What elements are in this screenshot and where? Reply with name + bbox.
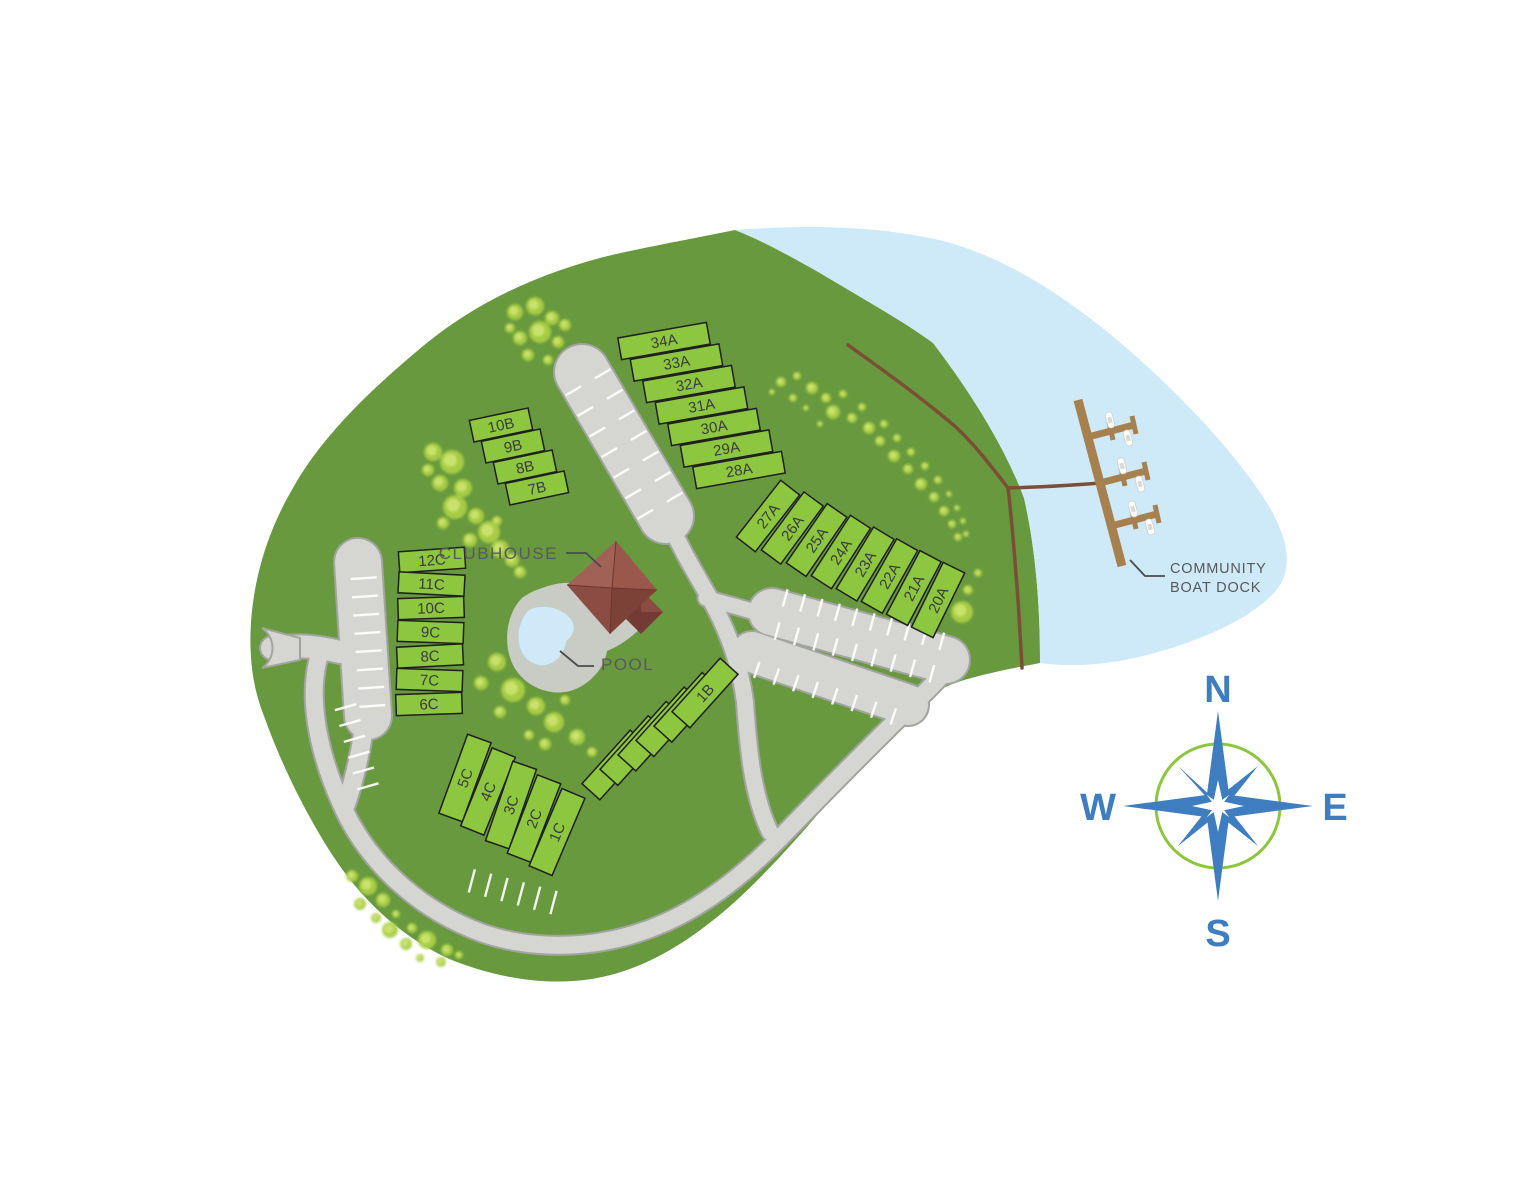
clubhouse-label: CLUBHOUSE [439, 544, 558, 563]
tree-highlight [541, 740, 548, 747]
compass-north: N [1204, 669, 1231, 711]
lot-number: 6C [419, 696, 439, 714]
tree-highlight [444, 454, 457, 467]
tree-highlight [794, 373, 798, 377]
tree-highlight [532, 324, 544, 336]
tree-highlight [954, 604, 966, 616]
compass-east: E [1322, 787, 1347, 829]
tree-highlight [465, 535, 473, 543]
boat-dock-label-line2: BOAT DOCK [1170, 580, 1261, 596]
tree-highlight [509, 306, 518, 315]
tree-highlight [496, 708, 503, 715]
tree-highlight [849, 415, 855, 421]
tree-highlight [434, 477, 443, 486]
tree-highlight [859, 404, 863, 408]
tree-highlight [770, 390, 773, 393]
tree-highlight [908, 449, 912, 453]
tree-highlight [881, 421, 885, 425]
tree-highlight [931, 494, 937, 500]
tree-highlight [964, 532, 967, 535]
tree-highlight [362, 880, 372, 890]
tree-highlight [470, 510, 479, 519]
lot-number: 11C [418, 576, 445, 594]
tree-highlight [894, 435, 898, 439]
tree-highlight [778, 379, 784, 385]
compass-south: S [1205, 913, 1230, 955]
lot-9C[interactable]: 9C [397, 620, 464, 643]
pool-label: POOL [601, 655, 654, 674]
tree-highlight [808, 384, 815, 391]
tree-highlight [554, 338, 561, 345]
lot-number: 9C [421, 624, 441, 642]
tree-highlight [373, 915, 379, 921]
lot-number: 8C [420, 648, 440, 666]
tree-highlight [890, 452, 897, 459]
tree-highlight [941, 508, 947, 514]
tree-highlight [562, 697, 568, 703]
tree-highlight [457, 482, 467, 492]
tree-highlight [877, 438, 883, 444]
lot-number: 7C [420, 672, 440, 690]
lot-6C[interactable]: 6C [396, 692, 463, 715]
tree-highlight [439, 519, 446, 526]
tree-highlight [823, 395, 829, 401]
tree-highlight [356, 900, 363, 907]
tree-highlight [456, 952, 460, 956]
tree-highlight [905, 466, 911, 472]
site-plan-page: 10B9B8B7B34A33A32A31A30A29A28A27A26A25A2… [0, 0, 1536, 1187]
tree-highlight [547, 313, 555, 321]
tree-highlight [545, 357, 551, 363]
tree-highlight [516, 568, 523, 575]
tree-highlight [438, 959, 444, 965]
tree-highlight [443, 946, 450, 953]
tree-highlight [947, 492, 950, 495]
tree-highlight [965, 587, 971, 593]
tree-highlight [507, 325, 513, 331]
lot-11C[interactable]: 11C [398, 572, 465, 596]
tree-highlight [530, 700, 540, 710]
tree-highlight [818, 422, 821, 425]
tree-highlight [515, 333, 523, 341]
tree-highlight [481, 524, 493, 536]
tree-highlight [840, 391, 844, 395]
tree-highlight [402, 940, 409, 947]
tree-highlight [790, 395, 794, 399]
tree-highlight [865, 424, 872, 431]
tree-highlight [393, 911, 397, 915]
tree-highlight [917, 480, 924, 487]
tree-highlight [949, 521, 953, 525]
tree-highlight [804, 406, 807, 409]
tree-highlight [589, 749, 595, 755]
road [358, 562, 368, 716]
boat-dock-label-line1: COMMUNITY [1170, 561, 1267, 577]
tree-highlight [409, 925, 415, 931]
tree-highlight [935, 477, 939, 481]
lot-8C[interactable]: 8C [396, 644, 463, 668]
tree-highlight [447, 499, 460, 512]
tree-highlight [961, 519, 964, 522]
tree-highlight [547, 715, 558, 726]
site-map: 10B9B8B7B34A33A32A31A30A29A28A27A26A25A2… [0, 0, 1536, 1187]
compass-rose: N S E W [1080, 669, 1348, 955]
tree-highlight [427, 446, 437, 456]
tree-highlight [494, 518, 500, 524]
tree-highlight [975, 570, 979, 574]
tree-highlight [524, 351, 531, 358]
tree-highlight [476, 678, 484, 686]
tree-highlight [922, 463, 926, 467]
tree-highlight [529, 300, 539, 310]
tree-highlight [955, 506, 958, 509]
lot-10C[interactable]: 10C [398, 596, 465, 619]
tree-highlight [491, 656, 501, 666]
compass-west: W [1080, 787, 1116, 829]
tree-highlight [348, 872, 355, 879]
tree-highlight [526, 732, 532, 738]
tree-highlight [424, 466, 431, 473]
tree-highlight [561, 321, 568, 328]
tree-highlight [378, 895, 386, 903]
lot-7C[interactable]: 7C [396, 668, 463, 691]
lot-number: 10C [417, 600, 445, 618]
tree-highlight [505, 682, 518, 695]
tree-highlight [955, 534, 959, 538]
tree-highlight [828, 407, 836, 415]
tree-highlight [417, 955, 421, 959]
tree-highlight [571, 731, 580, 740]
tree-highlight [421, 934, 431, 944]
tree-highlight [384, 924, 393, 933]
